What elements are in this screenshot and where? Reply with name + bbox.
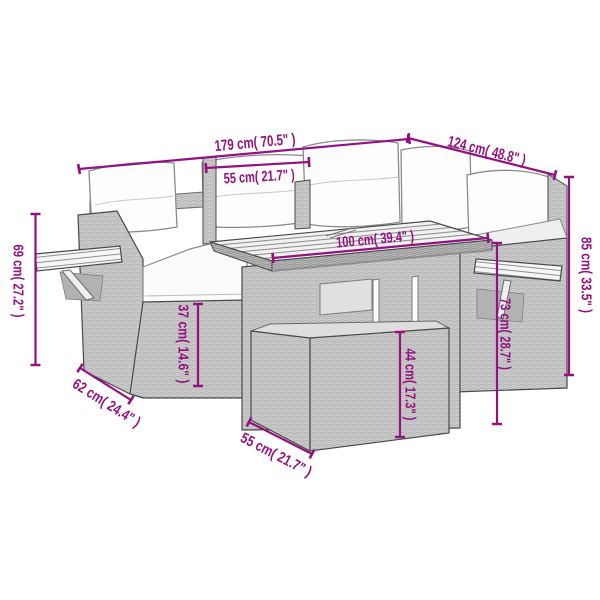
svg-text:85 cm( 33.5" ): 85 cm( 33.5" )	[578, 237, 595, 313]
svg-text:37 cm( 14.6" ): 37 cm( 14.6" )	[175, 305, 191, 384]
svg-text:44 cm( 17.3" ): 44 cm( 17.3" )	[402, 349, 418, 421]
svg-text:69 cm( 27.2" ): 69 cm( 27.2" )	[10, 245, 27, 318]
svg-text:73 cm( 28.7" ): 73 cm( 28.7" )	[497, 298, 513, 370]
